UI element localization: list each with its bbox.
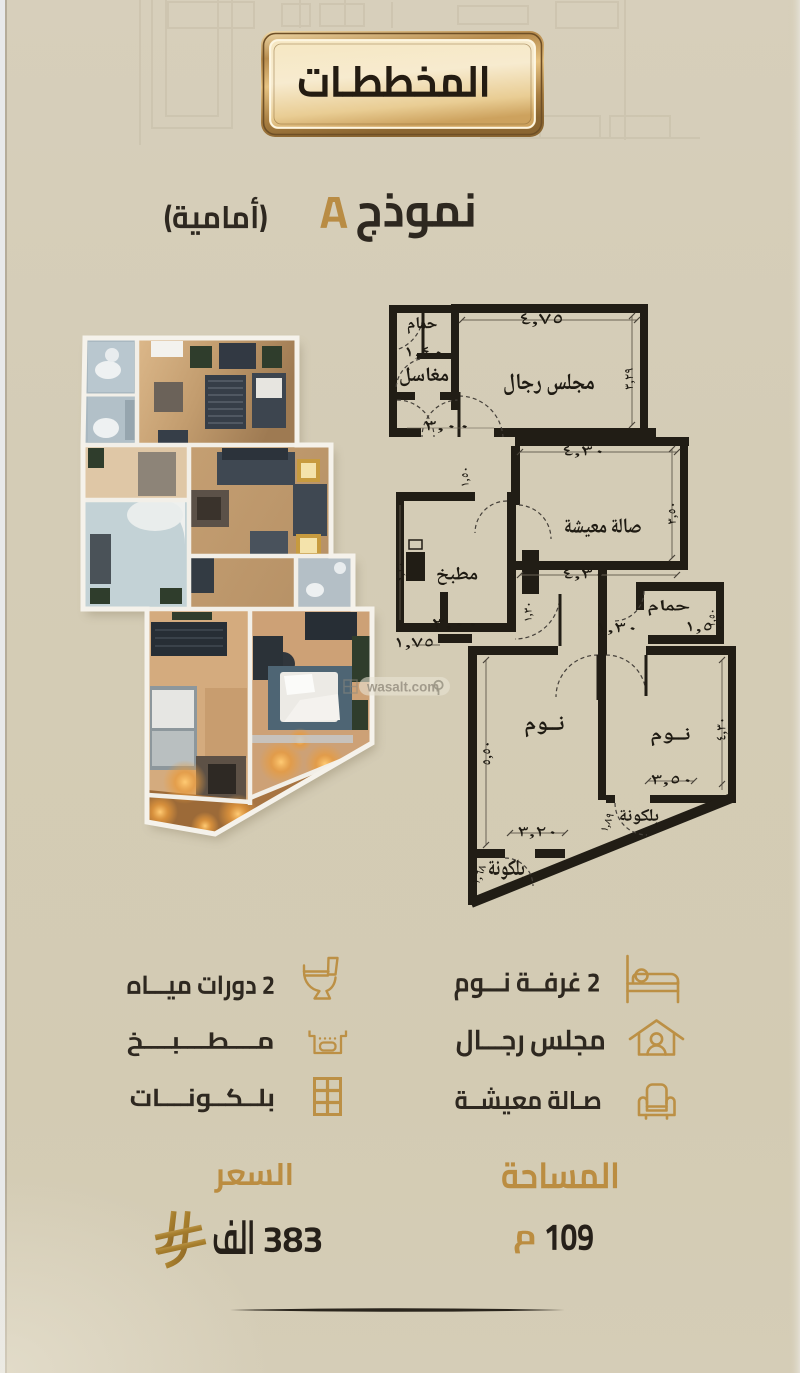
svg-text:wasalt.com: wasalt.com — [366, 680, 439, 695]
